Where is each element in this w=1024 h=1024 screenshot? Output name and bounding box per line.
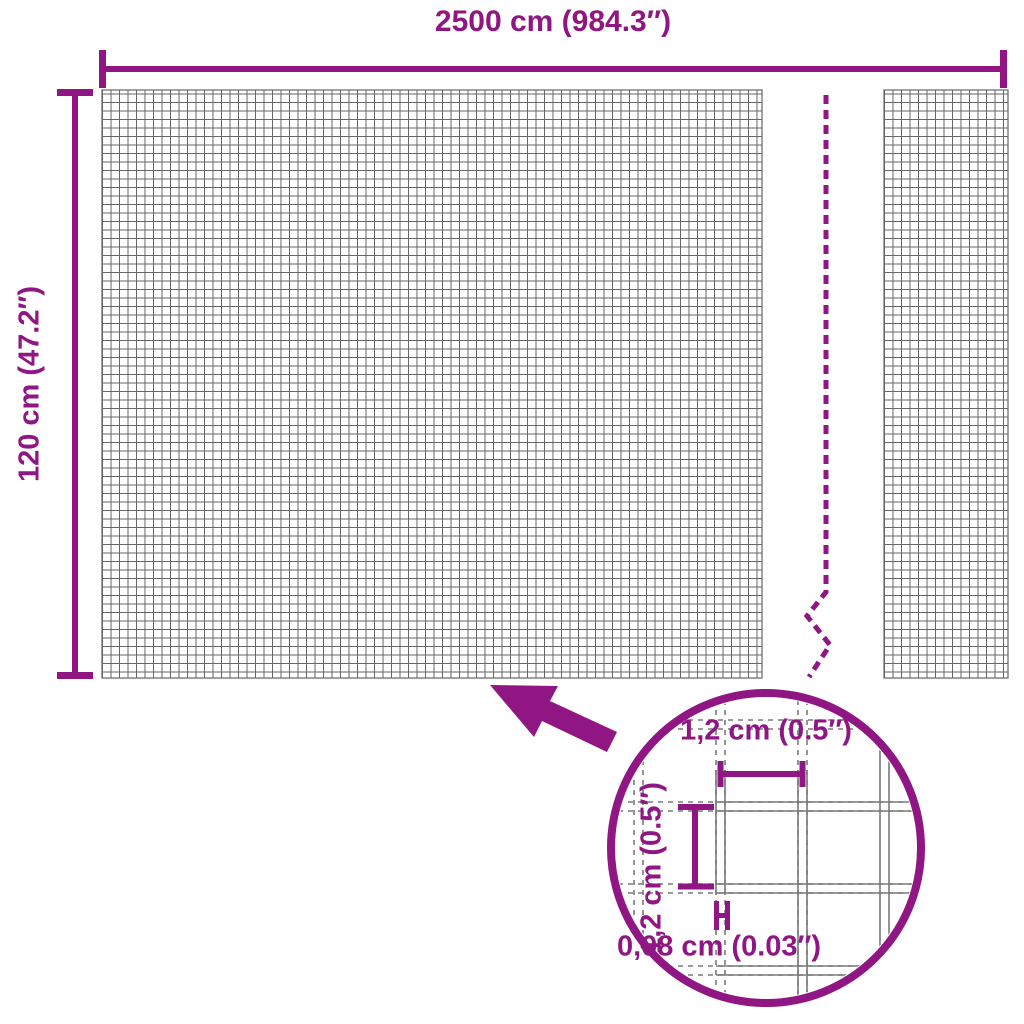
top-width-dimension-line <box>102 50 1004 88</box>
zoom-callout-arrow-icon <box>490 685 617 752</box>
product-dimension-diagram: 2500 cm (984.3″) 120 cm (47.2″) 1,2 cm (… <box>0 0 1024 1024</box>
diagram-linework <box>0 0 1024 1024</box>
mesh-width-label: 1,2 cm (0.5″) <box>680 717 852 746</box>
total-width-label: 2500 cm (984.3″) <box>102 7 1004 37</box>
break-continuation-dashed-line <box>807 95 830 677</box>
wire-thickness-label: 0,08 cm (0.03″) <box>617 933 821 962</box>
left-height-dimension-line <box>57 92 93 676</box>
mesh-height-label: 1,2 cm (0.5″) <box>638 782 667 954</box>
height-label: 120 cm (47.2″) <box>16 286 45 482</box>
mesh-panel-right <box>884 90 1008 678</box>
mesh-panel-main <box>102 90 762 678</box>
